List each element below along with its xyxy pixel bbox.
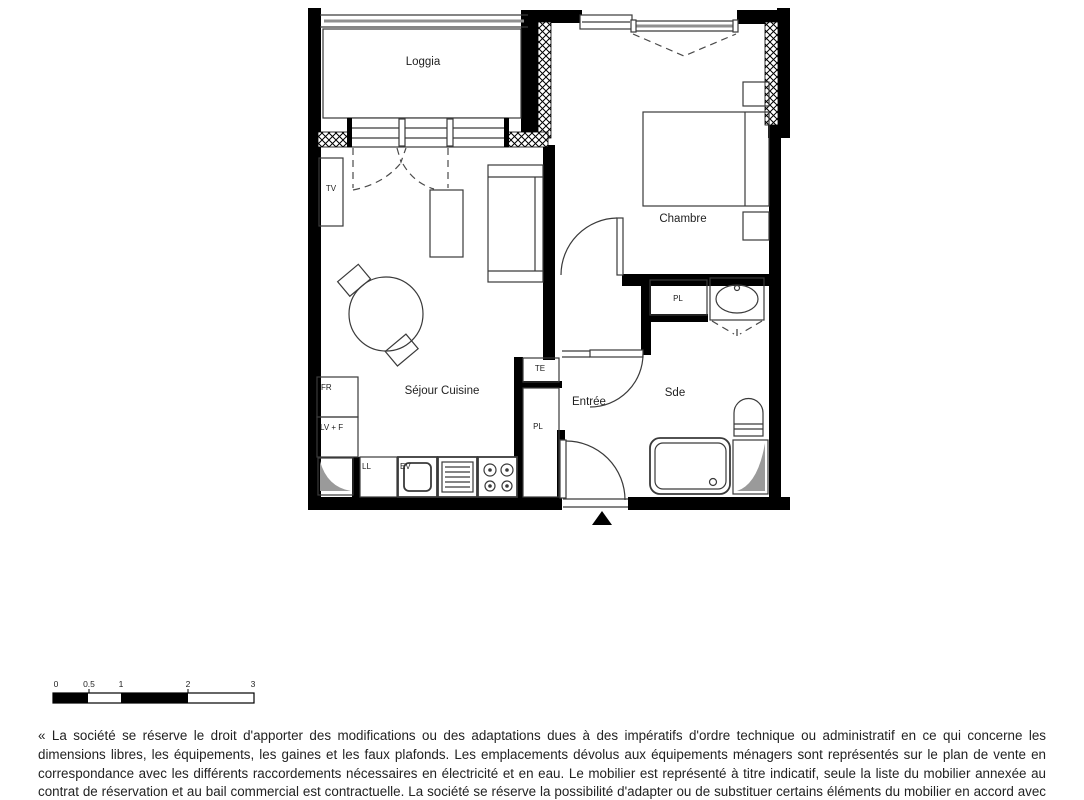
label-tv: TV	[326, 184, 337, 193]
loggia	[320, 15, 528, 190]
walls	[308, 8, 790, 510]
bay-window-swing	[353, 148, 448, 190]
duct-box-bath	[733, 440, 768, 494]
scale-tick-3: 3	[251, 679, 256, 689]
room-label-sde: Sde	[665, 387, 685, 399]
drainer	[438, 457, 477, 497]
shower	[650, 438, 730, 494]
pl-hall-closet	[523, 388, 559, 497]
sejour-furniture	[319, 158, 543, 366]
toilet	[734, 399, 763, 437]
label-pl-hall: PL	[533, 422, 543, 431]
bed	[643, 112, 769, 206]
label-te: TE	[535, 364, 545, 373]
chambre-door	[561, 218, 623, 275]
label-ll: LL	[362, 462, 371, 471]
room-label-sejour-cuisine: Séjour Cuisine	[405, 385, 480, 397]
chambre-windows	[580, 15, 738, 56]
label-ev: EV	[400, 462, 411, 471]
floor-plan-page: Loggia Chambre Séjour Cuisine Entrée Sde…	[0, 0, 1084, 800]
chair	[338, 264, 371, 296]
scale-tick-05: 0.5	[83, 679, 95, 689]
window-opening-indicator	[633, 34, 736, 56]
hob	[478, 457, 517, 497]
label-lv-f: LV + F	[320, 423, 343, 432]
scale-bar: 0 0.5 1 2 3	[53, 679, 256, 703]
nightstand	[743, 212, 769, 240]
scale-tick-0: 0	[54, 679, 59, 689]
scale-tick-1: 1	[119, 679, 124, 689]
room-label-entree: Entrée	[572, 396, 606, 408]
entrance-arrow-icon	[592, 511, 612, 525]
label-fr: FR	[321, 383, 332, 392]
label-pl-bath: PL	[673, 294, 683, 303]
washbasin	[710, 278, 764, 336]
bay-window	[347, 118, 509, 147]
legal-disclaimer: « La société se réserve le droit d'appor…	[38, 727, 1046, 800]
room-label-chambre: Chambre	[659, 213, 706, 225]
room-label-loggia: Loggia	[406, 56, 441, 68]
floor-plan-drawing: Loggia Chambre Séjour Cuisine Entrée Sde…	[0, 0, 1084, 800]
bathroom	[650, 278, 768, 494]
sofa	[488, 165, 543, 282]
scale-tick-2: 2	[186, 679, 191, 689]
duct-box	[318, 458, 353, 495]
side-table	[430, 190, 463, 257]
entrance-door	[560, 440, 628, 510]
